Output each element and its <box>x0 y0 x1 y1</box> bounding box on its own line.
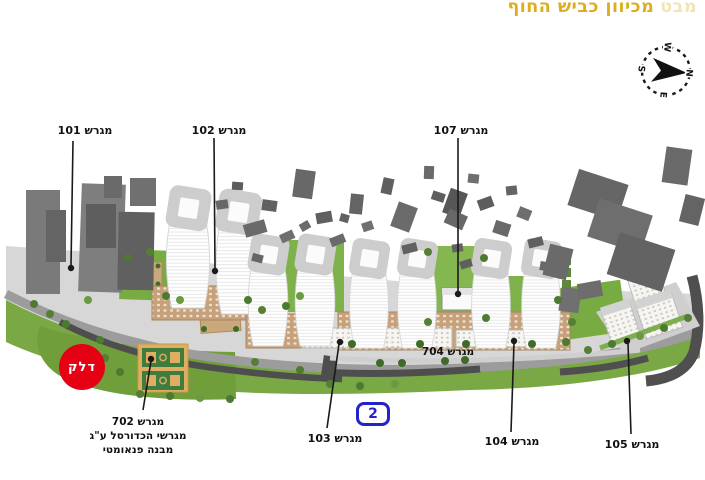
delek-fuel-logo: דלק <box>59 344 105 390</box>
label-plot-107: מגרש 107 <box>434 124 489 138</box>
site-plan-illustration: N E S W <box>0 0 705 480</box>
label-plot-702-line2: מגרשי הכדורסל ע"ג <box>90 429 187 443</box>
label-plot-702-line3: מבנה פנאומטי <box>90 443 187 457</box>
label-plot-702-line1: מגרש 702 <box>90 415 187 429</box>
route-2-badge: 2 <box>356 402 390 426</box>
label-plot-103: מגרש 103 <box>308 432 363 446</box>
title-faded-word: מבט <box>660 0 697 17</box>
basketball-courts <box>138 344 188 392</box>
title-main-text: מכיוון כביש החוף <box>507 0 654 17</box>
compass-icon: N E S W <box>633 39 696 100</box>
label-plot-102: מגרש 102 <box>192 124 247 138</box>
compass-needle <box>651 58 688 85</box>
delek-logo-text: דלק <box>68 360 96 375</box>
label-plot-101: מגרש 101 <box>58 124 113 138</box>
compass-west-label: W <box>661 42 672 53</box>
compass-south-label: S <box>635 65 646 72</box>
label-plot-104: מגרש 104 <box>485 435 540 449</box>
site-plan-page: N E S W מבטמכיוון כביש החוף מגרש 101 מגר… <box>0 0 705 480</box>
route-number: 2 <box>368 406 378 422</box>
compass-north-label: N <box>683 69 694 77</box>
label-plot-702: מגרש 702 מגרשי הכדורסל ע"ג מבנה פנאומטי <box>90 415 187 457</box>
compass-east-label: E <box>657 91 667 98</box>
label-plot-704: מגרש 704 <box>422 345 474 359</box>
page-title: מבטמכיוון כביש החוף <box>507 0 697 17</box>
label-plot-105: מגרש 105 <box>605 438 660 452</box>
